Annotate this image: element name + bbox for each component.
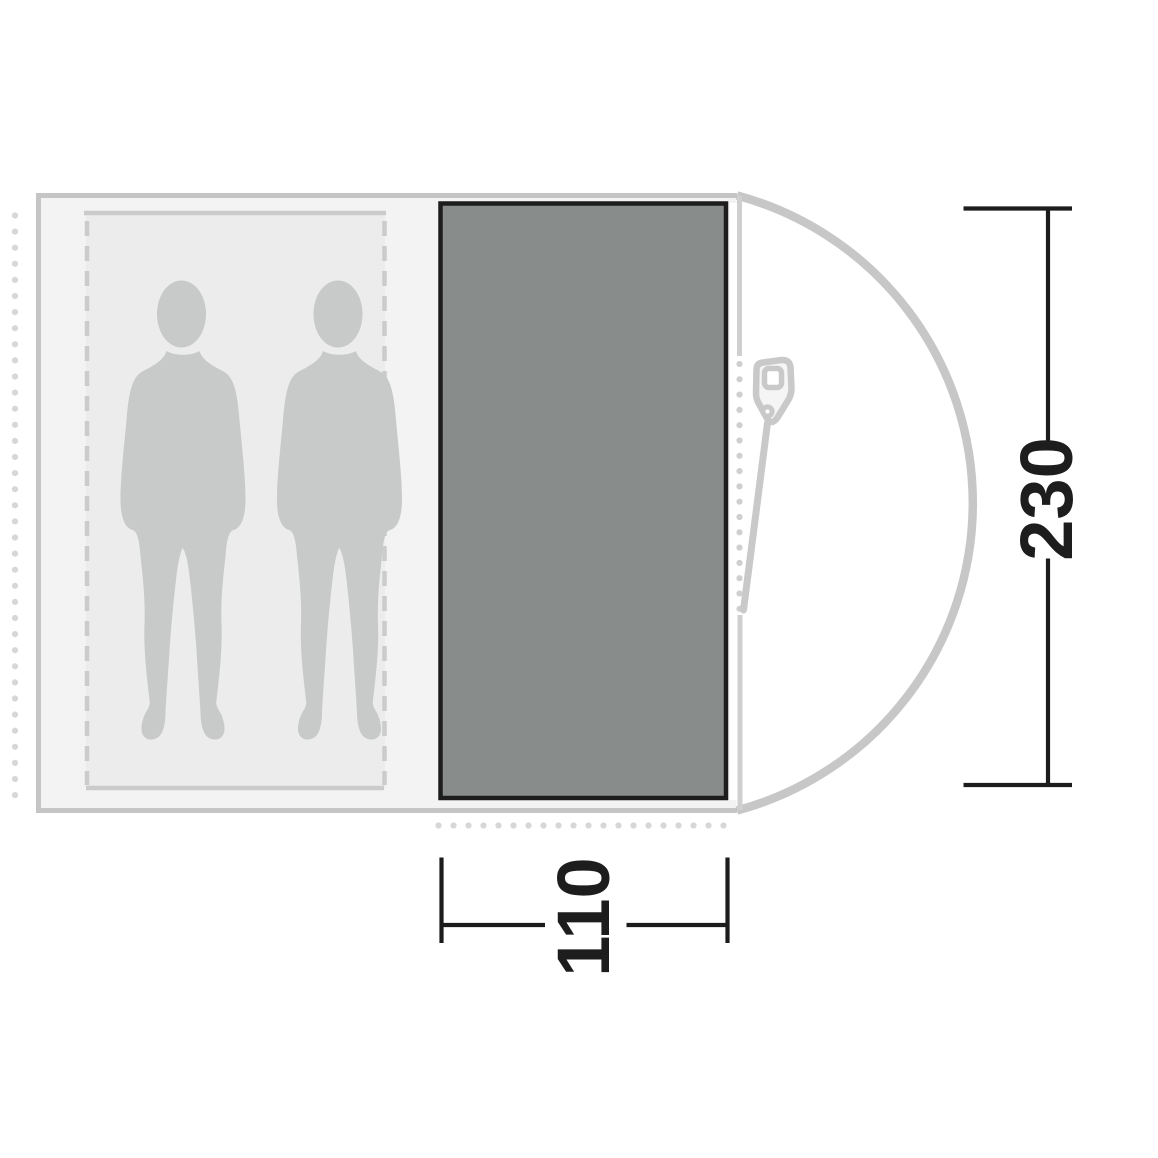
dot: [12, 293, 18, 299]
dot: [736, 422, 742, 428]
dot: [585, 822, 591, 828]
dot: [675, 822, 681, 828]
dot: [736, 407, 742, 413]
dot: [12, 518, 18, 524]
dot: [736, 392, 742, 398]
dot: [736, 590, 742, 596]
dot: [736, 514, 742, 520]
dot: [736, 437, 742, 443]
dot: [12, 229, 18, 235]
dot: [495, 822, 501, 828]
dot: [12, 712, 18, 718]
dot: [736, 468, 742, 474]
dot: [720, 822, 726, 828]
dot: [12, 470, 18, 476]
dot: [12, 277, 18, 283]
dot: [510, 822, 516, 828]
dot: [12, 357, 18, 363]
bottom-peg-dots: [435, 822, 726, 828]
dot: [12, 245, 18, 251]
dot: [736, 529, 742, 535]
door-zipper-dots: [736, 361, 742, 612]
dot: [450, 822, 456, 828]
dot: [12, 534, 18, 540]
dot: [736, 545, 742, 551]
dot: [12, 390, 18, 396]
dot: [12, 502, 18, 508]
dot: [12, 406, 18, 412]
dot: [600, 822, 606, 828]
dot: [12, 261, 18, 267]
dot: [12, 679, 18, 685]
dot: [630, 822, 636, 828]
dot: [12, 309, 18, 315]
dot: [12, 341, 18, 347]
dot: [12, 615, 18, 621]
dot: [736, 560, 742, 566]
porch-dome-outline: [737, 196, 973, 811]
dot: [12, 760, 18, 766]
dot: [690, 822, 696, 828]
dot: [435, 822, 441, 828]
tent-floorplan-diagram: 230 110: [0, 0, 1158, 1158]
dot: [736, 453, 742, 459]
dot: [570, 822, 576, 828]
dot: [12, 776, 18, 782]
dot: [736, 499, 742, 505]
width-dimension-label: 110: [547, 857, 621, 976]
dot: [480, 822, 486, 828]
dot: [12, 567, 18, 573]
dot: [12, 695, 18, 701]
dot: [465, 822, 471, 828]
zipper-pull-icon: [744, 360, 792, 610]
dot: [12, 792, 18, 798]
dot: [12, 551, 18, 557]
dot: [660, 822, 666, 828]
dot: [12, 663, 18, 669]
dot: [615, 822, 621, 828]
zipper-slider-hole: [765, 369, 782, 388]
dot: [12, 599, 18, 605]
left-peg-dots: [12, 212, 18, 798]
dot: [525, 822, 531, 828]
dot: [12, 373, 18, 379]
groundsheet-panel: [441, 204, 727, 799]
dot: [555, 822, 561, 828]
dot: [645, 822, 651, 828]
dot: [12, 583, 18, 589]
dot: [12, 631, 18, 637]
zipper-cord: [744, 423, 768, 610]
dot: [12, 486, 18, 492]
dot: [12, 325, 18, 331]
dot: [12, 422, 18, 428]
door-threshold-strip: [730, 203, 737, 800]
dot: [12, 438, 18, 444]
dot: [736, 361, 742, 367]
dot: [12, 728, 18, 734]
dot: [12, 454, 18, 460]
floorplan-drawing: [0, 0, 1158, 1158]
height-dimension-label: 230: [1010, 437, 1084, 560]
dot: [12, 744, 18, 750]
dot: [736, 575, 742, 581]
dot: [705, 822, 711, 828]
dot: [540, 822, 546, 828]
zipper-pull-ring: [763, 407, 772, 416]
dot: [736, 483, 742, 489]
dot: [736, 376, 742, 382]
dot: [12, 212, 18, 218]
dot: [12, 647, 18, 653]
